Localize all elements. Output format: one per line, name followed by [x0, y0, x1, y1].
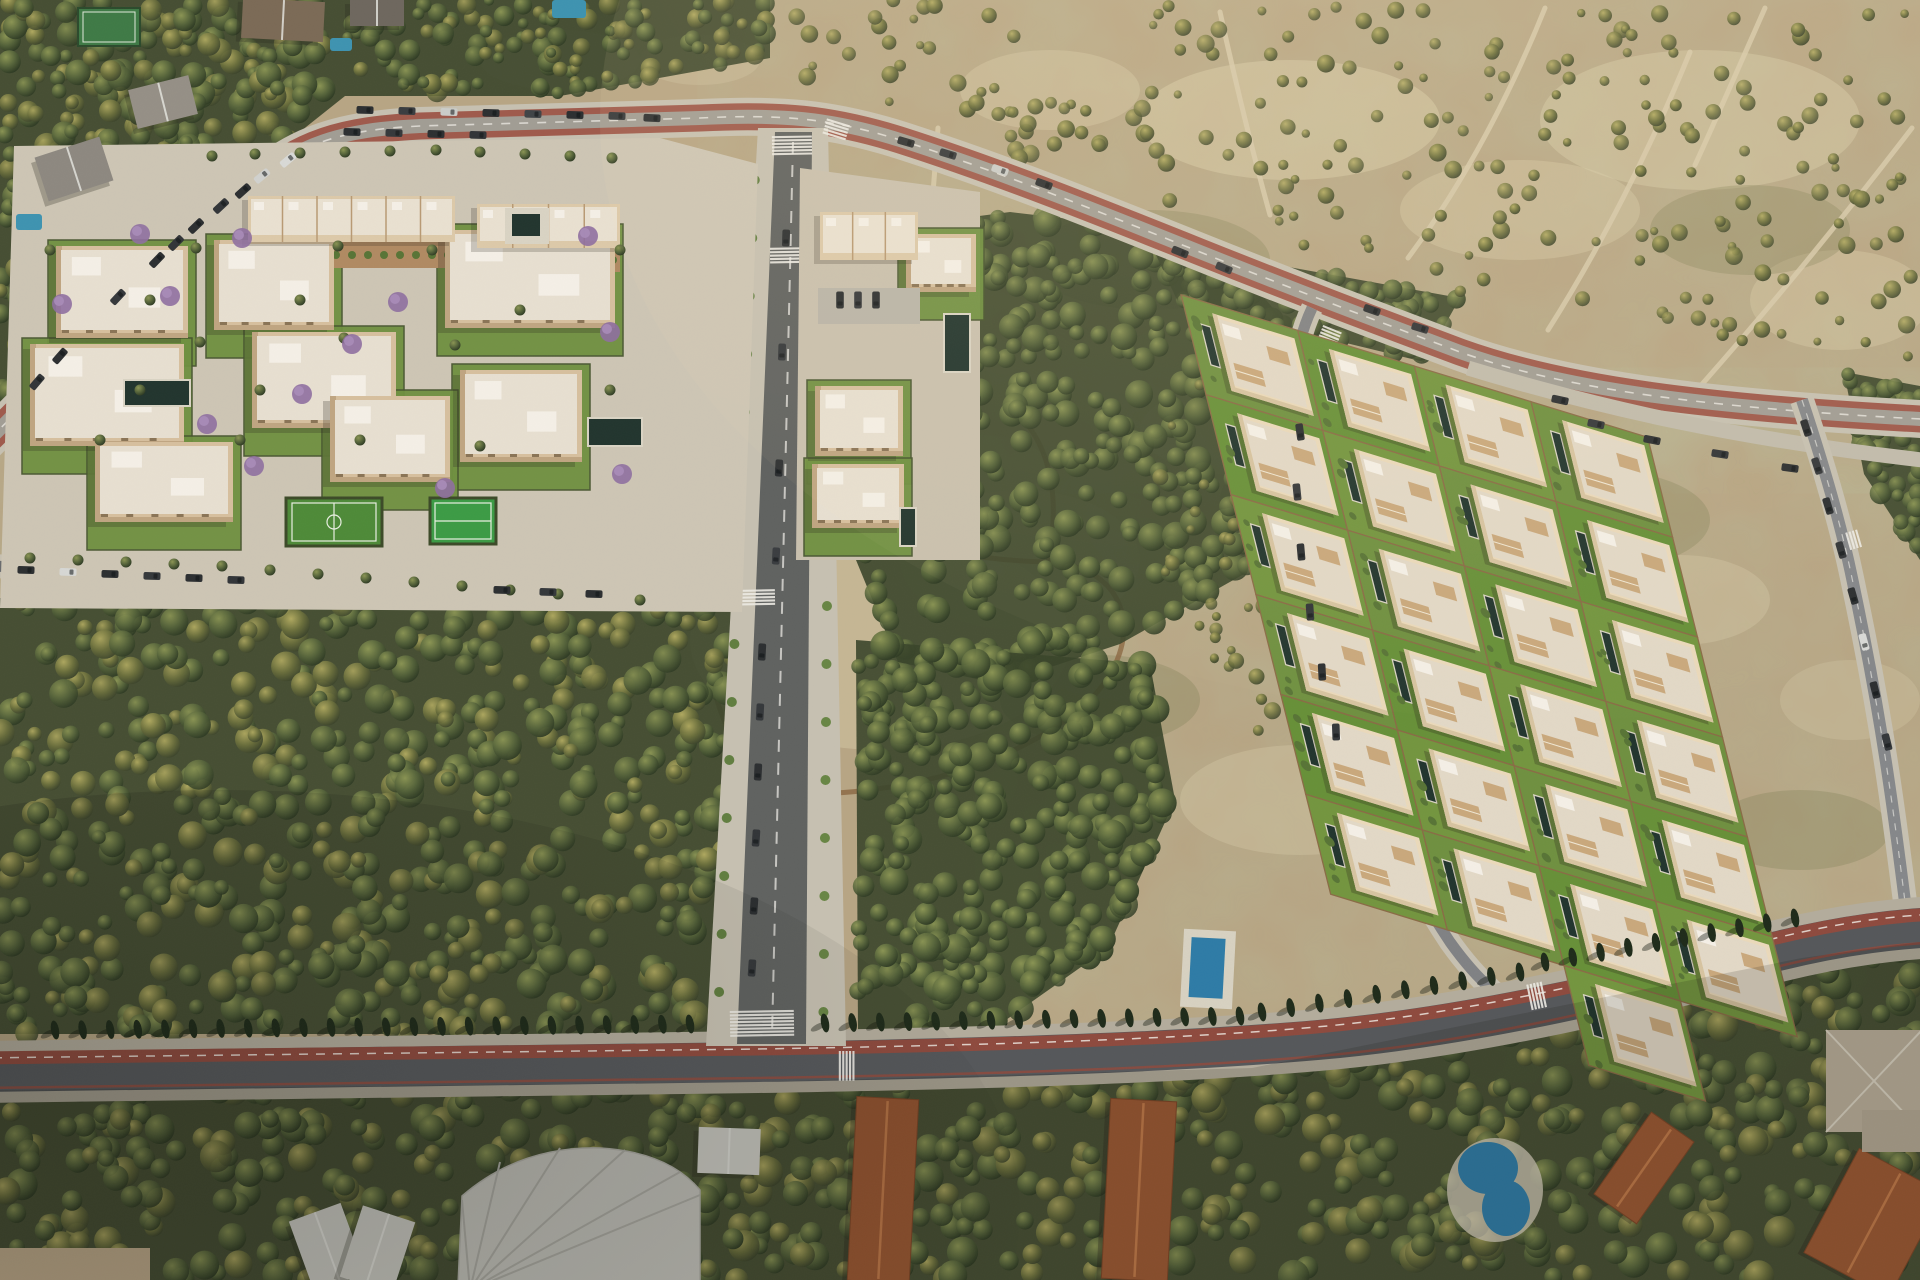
- aerial-render-screenshot: [0, 0, 1920, 1280]
- lighting-layer: [0, 0, 1920, 1280]
- film-grain: [0, 0, 1920, 1280]
- aerial-render-canvas: [0, 0, 1920, 1280]
